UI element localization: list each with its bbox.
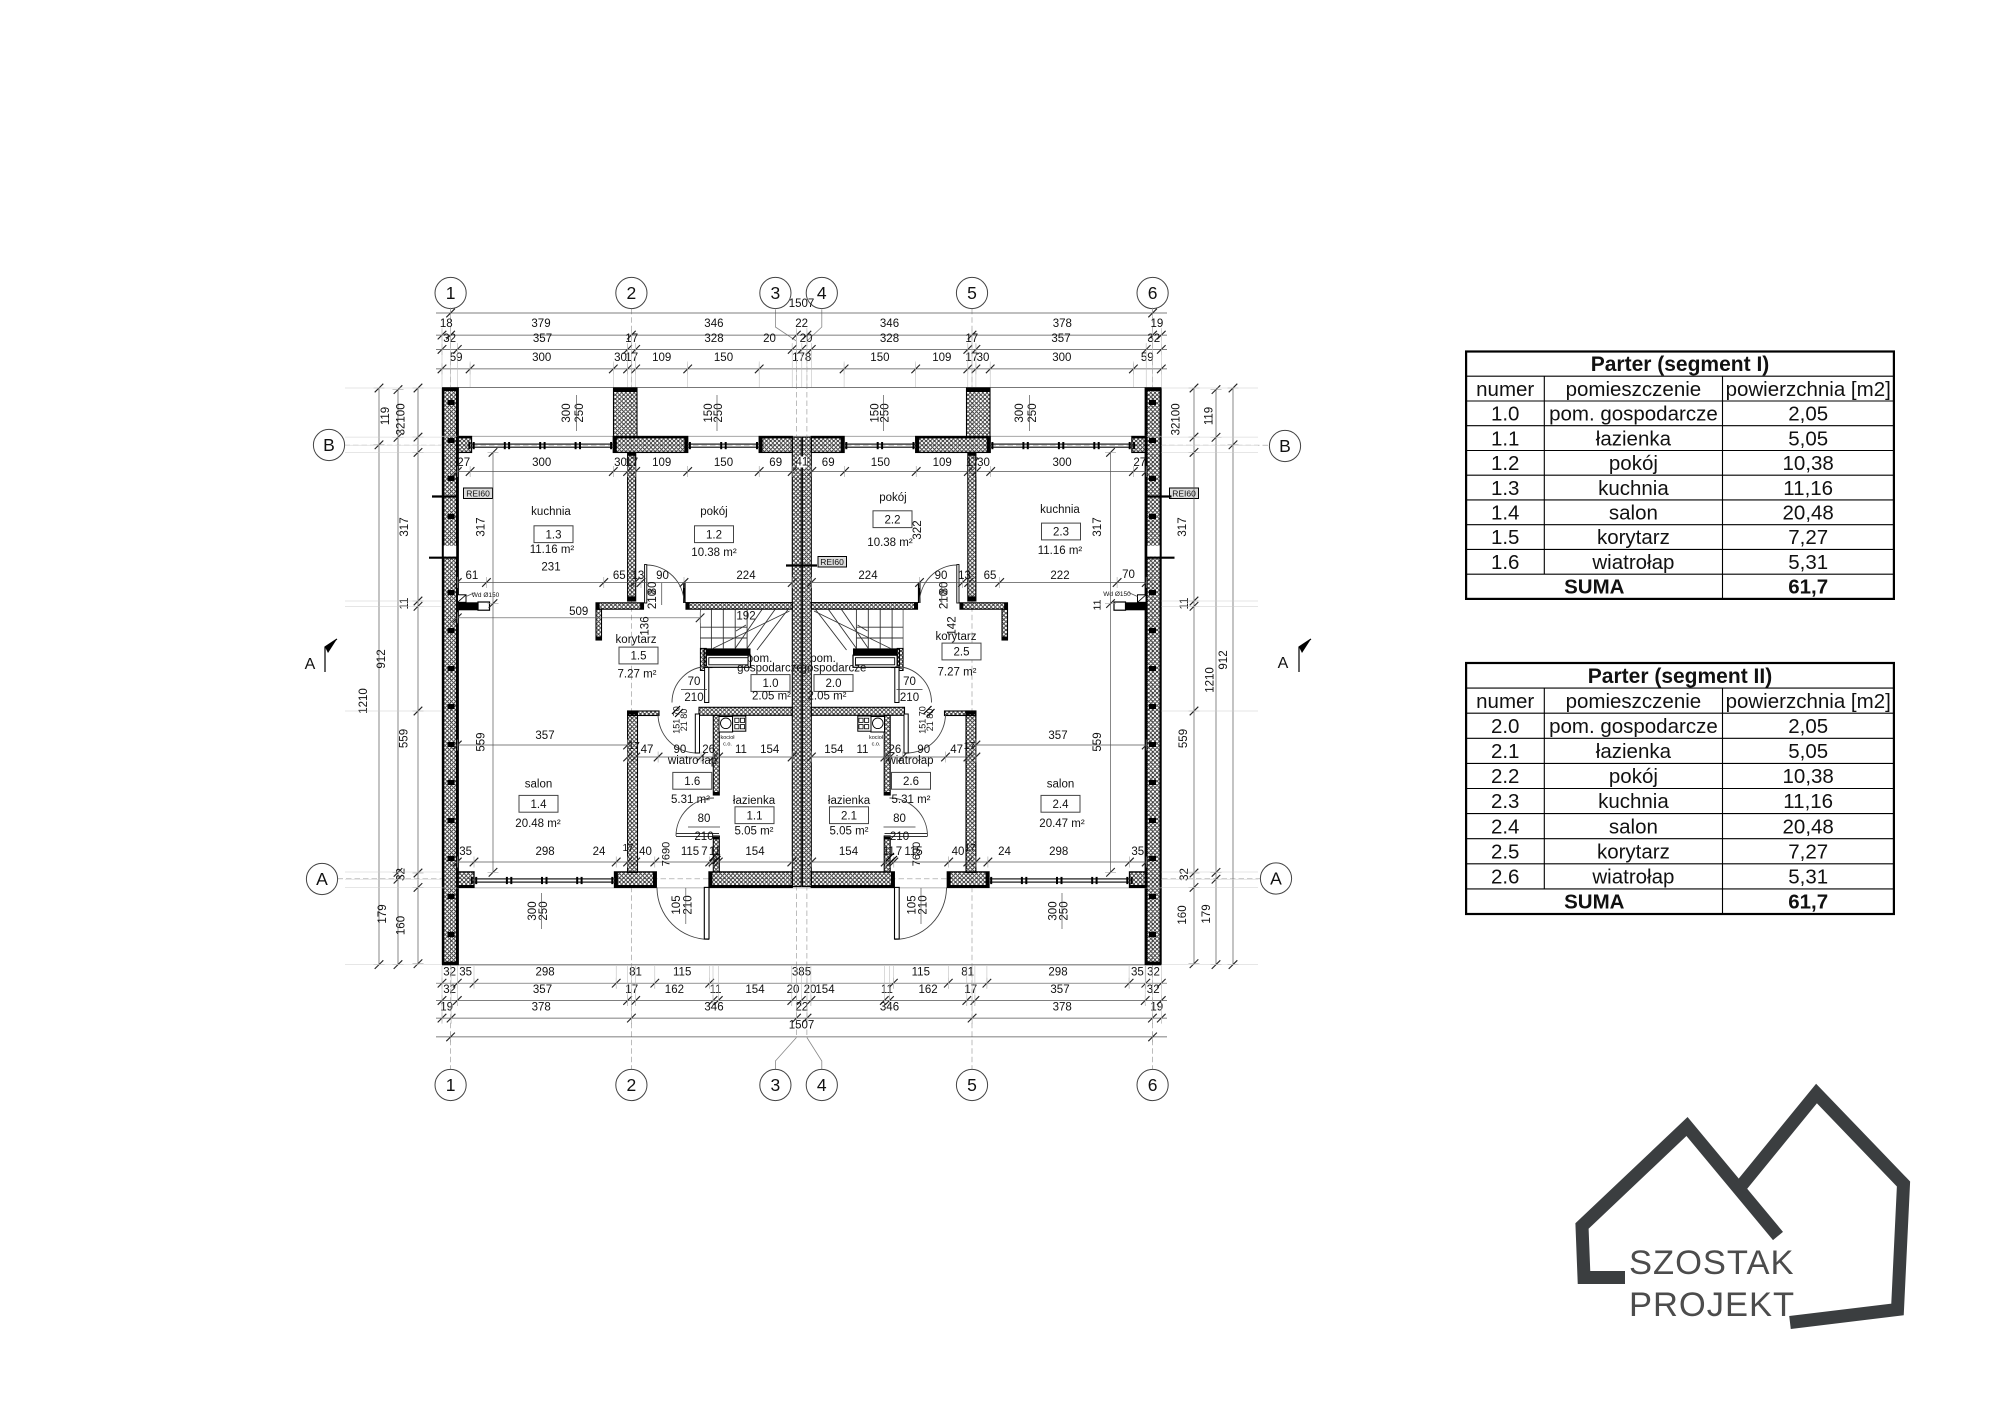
svg-text:32: 32 (443, 333, 456, 345)
svg-text:154: 154 (839, 846, 859, 858)
svg-text:Parter (segment I): Parter (segment I) (1591, 353, 1770, 376)
svg-text:17: 17 (628, 740, 640, 752)
svg-text:Wd Ø150: Wd Ø150 (1103, 591, 1131, 598)
svg-text:298: 298 (1049, 846, 1068, 858)
svg-text:2.5: 2.5 (954, 647, 970, 659)
svg-text:32: 32 (1147, 967, 1160, 979)
svg-text:salon: salon (1047, 779, 1075, 791)
svg-text:346: 346 (704, 1002, 723, 1014)
svg-text:80: 80 (893, 813, 906, 825)
svg-text:17: 17 (625, 457, 638, 469)
svg-text:210: 210 (900, 692, 919, 704)
svg-text:pokój: pokój (879, 492, 907, 504)
svg-text:65: 65 (984, 570, 997, 582)
svg-text:5,31: 5,31 (1788, 866, 1828, 889)
svg-text:47: 47 (950, 744, 963, 756)
svg-text:B: B (1279, 436, 1291, 456)
svg-text:pomieszczenie: pomieszczenie (1566, 690, 1702, 713)
svg-text:11: 11 (881, 984, 893, 996)
svg-text:korytarz: korytarz (1597, 841, 1670, 864)
svg-text:SUMA: SUMA (1564, 576, 1625, 599)
svg-text:210: 210 (647, 590, 659, 609)
svg-text:numer: numer (1476, 690, 1534, 713)
svg-text:2: 2 (627, 283, 637, 303)
svg-text:154: 154 (745, 984, 765, 996)
svg-text:2.6: 2.6 (1491, 866, 1520, 889)
svg-text:160: 160 (1177, 905, 1189, 924)
svg-text:5.05 m²: 5.05 m² (735, 826, 774, 838)
svg-text:kocioł: kocioł (720, 735, 735, 741)
svg-text:2.4: 2.4 (1491, 815, 1520, 838)
svg-text:1: 1 (446, 283, 456, 303)
svg-text:11: 11 (710, 984, 722, 996)
svg-text:5.31 m²: 5.31 m² (671, 794, 710, 806)
svg-text:70: 70 (903, 676, 916, 688)
svg-text:korytarz: korytarz (936, 631, 977, 643)
svg-text:1.4: 1.4 (531, 799, 548, 811)
svg-text:231: 231 (541, 562, 560, 574)
svg-text:1.0: 1.0 (763, 678, 779, 690)
svg-text:115: 115 (673, 967, 691, 979)
svg-text:1507: 1507 (789, 298, 815, 310)
svg-text:298: 298 (1048, 967, 1067, 979)
svg-text:SUMA: SUMA (1564, 891, 1625, 914)
svg-text:1.3: 1.3 (546, 529, 562, 541)
svg-text:300: 300 (1014, 403, 1026, 422)
svg-text:11: 11 (857, 744, 869, 756)
svg-text:2.5: 2.5 (1491, 841, 1520, 864)
svg-text:80: 80 (698, 813, 711, 825)
svg-text:pom. gospodarcze: pom. gospodarcze (1549, 715, 1718, 738)
svg-text:wiatrołap: wiatrołap (1591, 866, 1674, 889)
svg-text:10.38 m²: 10.38 m² (691, 547, 737, 559)
svg-text:20,48: 20,48 (1783, 502, 1834, 525)
svg-text:47: 47 (641, 744, 654, 756)
svg-text:korytarz: korytarz (1597, 526, 1670, 549)
svg-text:61: 61 (466, 570, 479, 582)
svg-text:5.31 m²: 5.31 m² (892, 794, 931, 806)
svg-text:154: 154 (815, 984, 835, 996)
svg-text:11: 11 (1092, 599, 1104, 610)
svg-text:559: 559 (476, 732, 488, 751)
svg-text:1.6: 1.6 (684, 776, 700, 788)
svg-text:300: 300 (561, 403, 573, 422)
svg-text:24: 24 (593, 846, 606, 858)
svg-text:357: 357 (533, 333, 552, 345)
svg-text:222: 222 (1050, 570, 1069, 582)
svg-text:100: 100 (396, 403, 408, 422)
svg-text:PROJEKT: PROJEKT (1629, 1286, 1795, 1324)
svg-text:35: 35 (1131, 846, 1144, 858)
svg-text:109: 109 (932, 352, 951, 364)
svg-text:150: 150 (871, 457, 890, 469)
svg-text:250: 250 (538, 901, 550, 920)
svg-text:powierzchnia [m2]: powierzchnia [m2] (1726, 690, 1891, 713)
svg-text:70: 70 (688, 676, 701, 688)
svg-text:10,38: 10,38 (1783, 765, 1834, 788)
svg-text:70: 70 (1122, 569, 1135, 581)
svg-text:115: 115 (681, 846, 699, 858)
svg-text:317: 317 (476, 517, 488, 536)
svg-text:2.3: 2.3 (1491, 790, 1520, 813)
svg-text:11,16: 11,16 (1783, 477, 1833, 500)
svg-text:90: 90 (935, 570, 948, 582)
svg-text:20: 20 (763, 333, 776, 345)
svg-text:11: 11 (883, 846, 895, 858)
svg-text:210: 210 (694, 831, 713, 843)
svg-text:357: 357 (1048, 730, 1067, 742)
svg-text:322: 322 (912, 520, 924, 539)
svg-text:32: 32 (1147, 984, 1160, 996)
svg-text:20.47 m²: 20.47 m² (1039, 818, 1085, 830)
svg-text:salon: salon (1609, 815, 1658, 838)
svg-text:kocioł: kocioł (869, 735, 884, 741)
svg-text:250: 250 (1027, 403, 1039, 422)
svg-text:912: 912 (1218, 650, 1230, 669)
svg-text:A: A (1278, 655, 1289, 672)
svg-text:6: 6 (1148, 283, 1158, 303)
svg-text:c.o.: c.o. (872, 742, 881, 748)
svg-text:11.16 m²: 11.16 m² (1038, 545, 1083, 557)
svg-text:24: 24 (998, 846, 1011, 858)
svg-text:gospodarcze: gospodarcze (801, 663, 867, 675)
svg-text:13: 13 (632, 570, 645, 582)
svg-text:17: 17 (625, 984, 638, 996)
svg-text:109: 109 (652, 457, 671, 469)
svg-text:379: 379 (531, 318, 550, 330)
svg-text:łazienka: łazienka (828, 795, 871, 807)
svg-text:1.2: 1.2 (1491, 452, 1520, 475)
svg-text:32: 32 (1147, 333, 1160, 345)
svg-text:2.2: 2.2 (885, 514, 901, 526)
svg-text:179: 179 (377, 904, 389, 923)
svg-text:7690: 7690 (661, 842, 673, 866)
svg-text:3: 3 (771, 283, 781, 303)
svg-text:90: 90 (656, 570, 669, 582)
svg-text:22: 22 (795, 1002, 808, 1014)
svg-text:115: 115 (912, 967, 930, 979)
svg-text:5: 5 (967, 1075, 977, 1095)
svg-text:160: 160 (396, 916, 408, 935)
svg-text:pom. gospodarcze: pom. gospodarcze (1549, 403, 1718, 426)
svg-text:328: 328 (704, 333, 723, 345)
svg-text:346: 346 (880, 318, 899, 330)
svg-text:5,05: 5,05 (1788, 740, 1828, 763)
svg-text:59: 59 (450, 352, 463, 364)
svg-text:1.1: 1.1 (1491, 427, 1520, 450)
svg-text:32: 32 (443, 984, 456, 996)
svg-text:wiatro łap: wiatro łap (667, 755, 717, 767)
svg-text:17: 17 (625, 333, 638, 345)
svg-text:REI60: REI60 (1172, 489, 1196, 499)
svg-text:154: 154 (745, 846, 765, 858)
svg-text:REI60: REI60 (820, 557, 844, 567)
svg-text:7,27: 7,27 (1788, 841, 1828, 864)
svg-text:250: 250 (713, 403, 725, 422)
svg-text:119: 119 (1204, 407, 1216, 425)
svg-text:2,05: 2,05 (1788, 403, 1828, 426)
svg-text:20.48 m²: 20.48 m² (515, 818, 561, 830)
svg-text:17: 17 (964, 984, 977, 996)
svg-text:105: 105 (671, 895, 683, 914)
svg-text:1.2: 1.2 (706, 529, 722, 541)
svg-text:3: 3 (771, 1075, 781, 1095)
svg-text:250: 250 (1059, 901, 1071, 920)
svg-text:559: 559 (399, 729, 411, 748)
svg-text:2.6: 2.6 (903, 776, 919, 788)
svg-text:328: 328 (880, 333, 899, 345)
svg-text:210: 210 (890, 831, 909, 843)
svg-text:61,7: 61,7 (1788, 576, 1828, 599)
svg-text:1.5: 1.5 (1491, 526, 1520, 549)
svg-text:kuchnia: kuchnia (1598, 477, 1669, 500)
svg-text:119: 119 (380, 407, 392, 425)
svg-text:1.4: 1.4 (1491, 502, 1520, 525)
svg-text:2.05 m²: 2.05 m² (808, 691, 847, 703)
svg-text:35: 35 (459, 846, 472, 858)
svg-text:kuchnia: kuchnia (1040, 504, 1080, 516)
svg-text:40: 40 (952, 846, 965, 858)
svg-text:11.16 m²: 11.16 m² (530, 544, 575, 556)
svg-text:7.27 m²: 7.27 m² (938, 667, 977, 679)
svg-text:17: 17 (964, 740, 976, 752)
svg-text:32: 32 (396, 423, 408, 436)
svg-text:1.3: 1.3 (1491, 477, 1520, 500)
svg-text:c.o.: c.o. (723, 742, 732, 748)
svg-text:179: 179 (1201, 904, 1213, 923)
svg-text:32: 32 (1171, 423, 1183, 436)
svg-text:150: 150 (714, 352, 733, 364)
svg-text:59: 59 (1141, 352, 1154, 364)
svg-text:162: 162 (919, 984, 938, 996)
svg-text:224: 224 (858, 570, 878, 582)
svg-text:5: 5 (967, 283, 977, 303)
svg-text:korytarz: korytarz (616, 634, 657, 646)
svg-text:21 80: 21 80 (679, 709, 689, 732)
svg-text:154: 154 (760, 744, 780, 756)
svg-text:2.0: 2.0 (826, 678, 842, 690)
svg-text:1210: 1210 (358, 688, 370, 714)
svg-text:5.05 m²: 5.05 m² (830, 826, 869, 838)
svg-text:7: 7 (701, 846, 707, 858)
svg-text:69: 69 (822, 457, 835, 469)
svg-text:A: A (305, 656, 316, 673)
svg-text:kuchnia: kuchnia (1598, 790, 1669, 813)
svg-text:61,7: 61,7 (1788, 891, 1828, 914)
svg-text:30: 30 (977, 352, 990, 364)
svg-text:357: 357 (533, 984, 552, 996)
svg-text:wiatrołap: wiatrołap (886, 755, 933, 767)
svg-text:10,38: 10,38 (1783, 452, 1834, 475)
svg-text:7.27 m²: 7.27 m² (618, 669, 657, 681)
svg-text:gospodarcze: gospodarcze (737, 663, 803, 675)
svg-text:300: 300 (532, 352, 551, 364)
svg-text:1.1: 1.1 (747, 810, 763, 822)
svg-text:numer: numer (1476, 378, 1534, 401)
svg-text:wiatrołap: wiatrołap (1591, 551, 1674, 574)
svg-text:20,48: 20,48 (1783, 815, 1834, 838)
svg-text:210: 210 (918, 895, 930, 914)
svg-text:kuchnia: kuchnia (531, 506, 571, 518)
svg-text:298: 298 (536, 967, 555, 979)
svg-text:250: 250 (574, 403, 586, 422)
svg-text:69: 69 (769, 457, 782, 469)
svg-text:21 80: 21 80 (925, 709, 935, 732)
svg-text:pokój: pokój (1609, 765, 1658, 788)
svg-text:2.2: 2.2 (1491, 765, 1520, 788)
svg-text:150: 150 (870, 352, 889, 364)
svg-text:B: B (323, 435, 335, 455)
svg-text:2.0: 2.0 (1491, 715, 1520, 738)
svg-text:317: 317 (399, 517, 411, 536)
svg-text:Parter (segment II): Parter (segment II) (1588, 665, 1772, 688)
svg-text:salon: salon (1609, 502, 1658, 525)
svg-text:17: 17 (622, 843, 634, 854)
svg-text:powierzchnia [m2]: powierzchnia [m2] (1726, 378, 1891, 401)
svg-text:2,05: 2,05 (1788, 715, 1828, 738)
svg-text:317: 317 (1177, 517, 1189, 536)
svg-text:150: 150 (714, 457, 733, 469)
svg-text:250: 250 (880, 403, 892, 422)
svg-text:łazienka: łazienka (733, 795, 776, 807)
svg-text:509: 509 (569, 606, 588, 618)
svg-text:35: 35 (459, 967, 472, 979)
svg-text:11: 11 (735, 744, 747, 756)
svg-text:A: A (316, 869, 328, 889)
svg-text:22: 22 (795, 318, 808, 330)
svg-text:32: 32 (443, 967, 456, 979)
svg-text:298: 298 (536, 846, 555, 858)
svg-text:109: 109 (652, 352, 671, 364)
svg-text:1: 1 (446, 1075, 456, 1095)
svg-text:2.1: 2.1 (841, 810, 857, 822)
svg-text:SZOSTAK: SZOSTAK (1629, 1244, 1794, 1282)
svg-text:2: 2 (627, 1075, 637, 1095)
svg-text:559: 559 (1092, 732, 1104, 751)
svg-text:2.1: 2.1 (1491, 740, 1520, 763)
svg-text:300: 300 (1053, 457, 1072, 469)
svg-text:162: 162 (665, 984, 684, 996)
svg-text:357: 357 (535, 730, 554, 742)
svg-text:łazienka: łazienka (1596, 427, 1672, 450)
svg-text:10.38 m²: 10.38 m² (867, 537, 913, 549)
svg-text:35: 35 (1131, 967, 1144, 979)
svg-text:pomieszczenie: pomieszczenie (1566, 378, 1702, 401)
svg-text:1210: 1210 (1205, 667, 1217, 693)
svg-text:30: 30 (977, 457, 990, 469)
svg-text:1.5: 1.5 (631, 651, 647, 663)
svg-text:Wd Ø150: Wd Ø150 (472, 592, 500, 599)
svg-text:11: 11 (1179, 598, 1191, 610)
svg-text:224: 224 (736, 570, 756, 582)
svg-text:41: 41 (796, 457, 809, 469)
svg-text:378: 378 (1053, 318, 1072, 330)
svg-text:1.0: 1.0 (1491, 403, 1520, 426)
svg-text:A: A (1270, 869, 1282, 889)
svg-text:27: 27 (1133, 457, 1146, 469)
svg-text:11,16: 11,16 (1783, 790, 1833, 813)
svg-text:210: 210 (684, 692, 703, 704)
svg-text:7,27: 7,27 (1788, 526, 1828, 549)
svg-text:357: 357 (1050, 984, 1069, 996)
svg-text:4: 4 (817, 1075, 827, 1095)
svg-text:300: 300 (1052, 352, 1071, 364)
svg-text:1507: 1507 (789, 1020, 815, 1032)
svg-text:1.6: 1.6 (1491, 551, 1520, 574)
svg-text:6: 6 (1148, 1075, 1158, 1095)
svg-text:17: 17 (625, 352, 638, 364)
svg-text:5,05: 5,05 (1788, 427, 1828, 450)
svg-text:13: 13 (958, 570, 971, 582)
svg-text:300: 300 (532, 457, 551, 469)
svg-text:378: 378 (532, 1002, 551, 1014)
svg-text:2.3: 2.3 (1053, 527, 1069, 539)
svg-text:salon: salon (525, 779, 553, 791)
svg-text:27: 27 (457, 457, 470, 469)
svg-text:20: 20 (787, 984, 800, 996)
svg-text:346: 346 (704, 318, 723, 330)
svg-text:378: 378 (1053, 1002, 1072, 1014)
svg-text:210: 210 (939, 590, 951, 609)
svg-text:pokój: pokój (1609, 452, 1658, 475)
svg-text:4: 4 (817, 283, 827, 303)
svg-text:317: 317 (1092, 517, 1104, 536)
svg-text:912: 912 (376, 649, 388, 668)
svg-text:100: 100 (1171, 403, 1183, 422)
svg-text:20: 20 (800, 333, 813, 345)
svg-text:2.4: 2.4 (1053, 799, 1070, 811)
svg-text:pokój: pokój (700, 506, 728, 518)
svg-text:łazienka: łazienka (1596, 740, 1672, 763)
svg-text:109: 109 (933, 457, 952, 469)
svg-text:40: 40 (639, 846, 652, 858)
svg-text:7690: 7690 (911, 842, 923, 866)
svg-text:2.05 m²: 2.05 m² (752, 691, 791, 703)
svg-text:65: 65 (613, 570, 626, 582)
svg-text:17: 17 (964, 843, 976, 854)
svg-text:5,31: 5,31 (1788, 551, 1828, 574)
svg-text:136: 136 (640, 616, 652, 635)
svg-text:REI60: REI60 (466, 489, 490, 499)
svg-text:210: 210 (683, 895, 695, 914)
svg-text:559: 559 (1178, 729, 1190, 748)
svg-text:357: 357 (1051, 333, 1070, 345)
svg-text:11: 11 (399, 598, 411, 610)
svg-text:192: 192 (736, 611, 755, 623)
svg-text:154: 154 (824, 744, 844, 756)
